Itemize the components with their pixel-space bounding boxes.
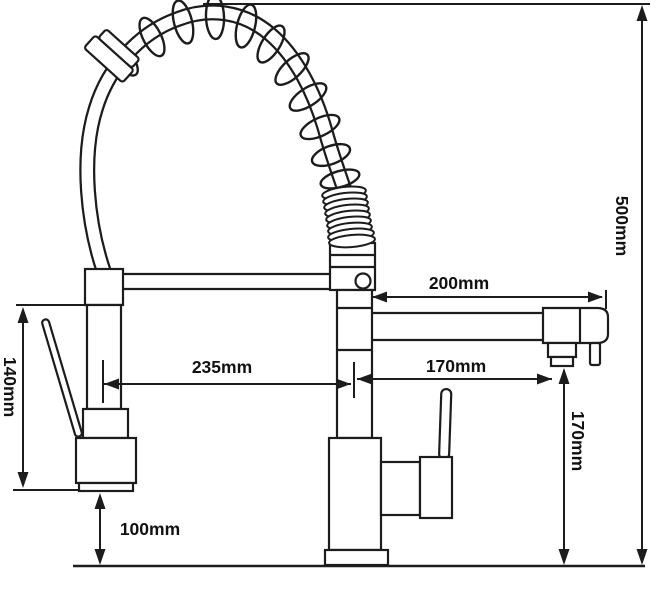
dim-label-235mm: 235mm xyxy=(192,357,252,377)
faucet-body xyxy=(321,184,375,438)
aerator-tip xyxy=(551,357,573,366)
faucet-dimension-diagram: 500mm 200mm 235mm 170mm xyxy=(0,0,658,600)
spray-nozzle-housing xyxy=(76,438,136,483)
handle-hub xyxy=(381,462,420,515)
handle-body xyxy=(420,457,452,518)
dimension-body-to-spout-end: 170mm xyxy=(357,356,552,385)
base-body xyxy=(329,438,381,550)
dimension-spout-outlet-height: 170mm xyxy=(559,368,589,565)
dim-label-100mm: 100mm xyxy=(120,519,180,539)
spring-hose xyxy=(84,0,362,272)
dim-label-170mm-horizontal: 170mm xyxy=(426,356,486,376)
loose-coil xyxy=(103,0,361,192)
spray-trigger-lever xyxy=(41,319,82,438)
dimension-spray-clearance: 100mm xyxy=(95,493,181,565)
tight-coil xyxy=(321,184,375,249)
dim-label-170mm-vertical: 170mm xyxy=(568,411,588,471)
dim-label-200mm: 200mm xyxy=(429,273,489,293)
aerator-collar xyxy=(548,343,576,357)
spout-end-tab xyxy=(590,343,600,365)
spray-head xyxy=(41,269,136,491)
spout-head xyxy=(543,308,608,343)
base-plate xyxy=(325,550,388,565)
hose-collar xyxy=(84,26,142,82)
bridge-pipe xyxy=(123,274,332,289)
dim-label-500mm: 500mm xyxy=(612,196,632,256)
diverter-button xyxy=(356,274,371,289)
spout xyxy=(372,308,608,366)
handle-lever xyxy=(439,389,451,459)
dimension-spray-to-body: 235mm xyxy=(103,357,354,403)
spray-face-plate xyxy=(79,483,133,491)
diagram-canvas: 500mm 200mm 235mm 170mm xyxy=(0,0,658,600)
spray-grip xyxy=(83,409,128,438)
spray-hose-block xyxy=(85,269,123,305)
dim-label-140mm: 140mm xyxy=(0,357,20,417)
dimension-spout-reach: 200mm xyxy=(372,273,606,309)
